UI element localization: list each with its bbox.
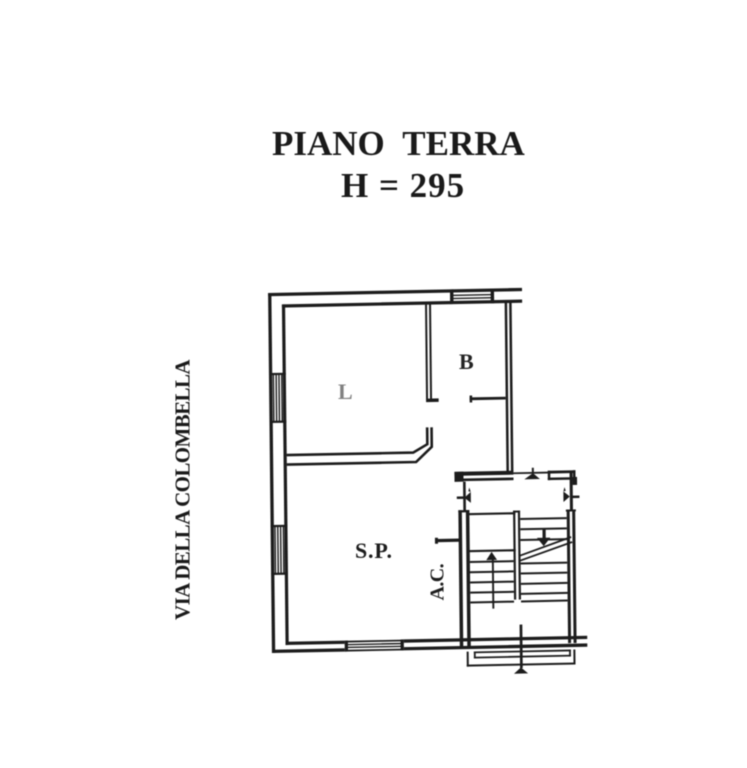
svg-text:L: L — [338, 379, 353, 404]
svg-text:B: B — [459, 349, 474, 374]
svg-text:A.C.: A.C. — [427, 563, 449, 600]
svg-text:S.P.: S.P. — [355, 538, 393, 563]
